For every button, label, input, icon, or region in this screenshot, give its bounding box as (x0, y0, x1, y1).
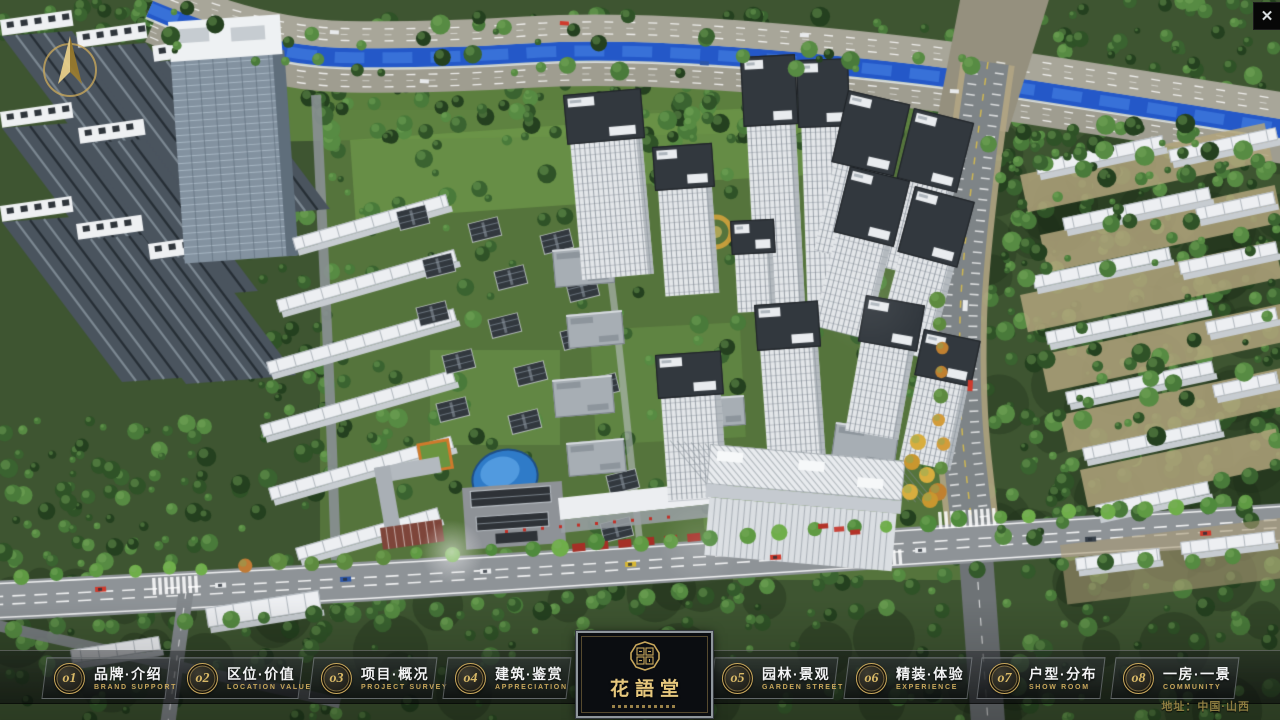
nav-item-location[interactable]: o2 区位·价值 LOCATION VALUE (174, 657, 303, 699)
nav-item-garden[interactable]: o5 园林·景观 GARDEN STREET (709, 657, 838, 699)
nav-item-interior[interactable]: o6 精装·体验 EXPERIENCE (843, 657, 972, 699)
nav-item-architecture[interactable]: o4 建筑·鉴赏 APPRECIATION (442, 657, 571, 699)
nav-label-en: COMMUNITY (1163, 683, 1231, 690)
nav-label-en: BRAND SUPPORT (94, 683, 177, 690)
nav-label-en: PROJECT SURVEY (361, 683, 448, 690)
nav-item-project[interactable]: o3 项目·概况 PROJECT SURVEY (308, 657, 437, 699)
nav-number-badge: o1 (54, 663, 85, 694)
nav-label-en: GARDEN STREET (762, 683, 844, 690)
nav-label-en: LOCATION VALUE (227, 683, 312, 690)
nav-number-badge: o4 (455, 663, 486, 694)
project-address: 地址：中国·山西 (1161, 698, 1250, 714)
nav-label-zh: 户型·分布 (1029, 666, 1097, 680)
nav-number-badge: o6 (856, 663, 887, 694)
seal-emblem-icon (630, 641, 660, 671)
nav-number-badge: o8 (1123, 663, 1154, 694)
nav-number-badge: o5 (722, 663, 753, 694)
nav-item-views[interactable]: o8 一房·一景 COMMUNITY (1110, 657, 1239, 699)
logo-subtext (612, 705, 678, 708)
nav-item-floorplan[interactable]: o7 户型·分布 SHOW ROOM (976, 657, 1105, 699)
nav-label-zh: 园林·景观 (762, 666, 844, 680)
nav-label-en: APPRECIATION (495, 683, 568, 690)
aerial-masterplan-render[interactable] (0, 0, 1280, 720)
logo-title: 花語堂 (604, 674, 685, 701)
nav-label-zh: 精装·体验 (896, 666, 964, 680)
nav-label-en: SHOW ROOM (1029, 683, 1097, 690)
nav-item-brand[interactable]: o1 品牌·介绍 BRAND SUPPORT (41, 657, 170, 699)
nav-label-en: EXPERIENCE (896, 683, 964, 690)
nav-label-zh: 品牌·介绍 (94, 666, 177, 680)
nav-label-zh: 建筑·鉴赏 (495, 666, 568, 680)
compass-icon (36, 30, 104, 102)
nav-number-badge: o7 (989, 663, 1020, 694)
nav-number-badge: o3 (321, 663, 352, 694)
nav-label-zh: 一房·一景 (1163, 666, 1231, 680)
nav-label-zh: 区位·价值 (227, 666, 312, 680)
close-icon: ✕ (1261, 7, 1274, 25)
project-logo: 花語堂 (576, 631, 713, 718)
nav-number-badge: o2 (187, 663, 218, 694)
masterplan-viewer: ✕ o1 品牌·介绍 BRAND SUPPORT o2 区位·价值 LOCATI… (0, 0, 1280, 720)
nav-label-zh: 项目·概况 (361, 666, 448, 680)
close-button[interactable]: ✕ (1253, 2, 1280, 30)
